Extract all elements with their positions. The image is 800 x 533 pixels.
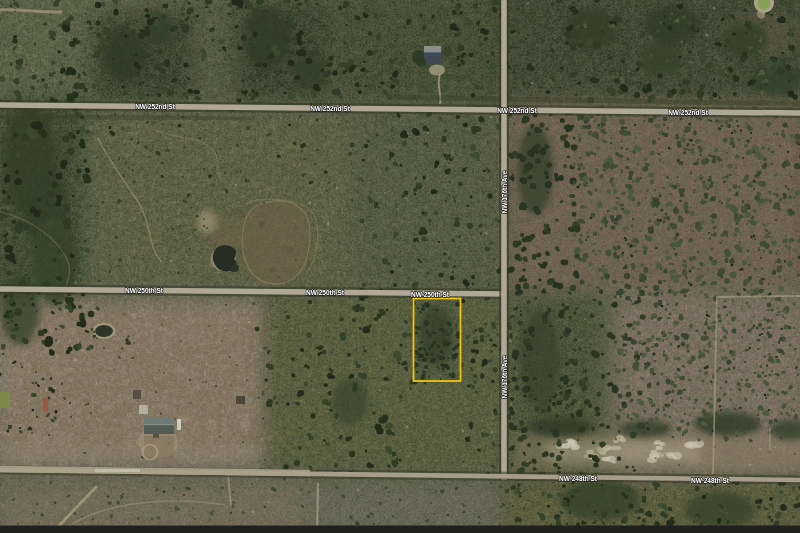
svg-text:NW 248th St: NW 248th St (691, 477, 730, 484)
svg-text:NW 176th Ave: NW 176th Ave (501, 355, 508, 398)
svg-text:NW 252nd St: NW 252nd St (135, 103, 176, 110)
svg-text:NW 248th St: NW 248th St (559, 475, 598, 482)
svg-text:NW 176th Ave: NW 176th Ave (501, 170, 508, 213)
svg-text:NW 250th St: NW 250th St (306, 289, 345, 296)
svg-text:NW 252nd St: NW 252nd St (668, 109, 709, 116)
svg-text:NW 252nd St: NW 252nd St (497, 107, 538, 114)
svg-text:NW 250th St: NW 250th St (125, 287, 164, 294)
svg-text:NW 252nd St: NW 252nd St (310, 105, 351, 112)
svg-text:NW 250th St: NW 250th St (411, 291, 450, 298)
